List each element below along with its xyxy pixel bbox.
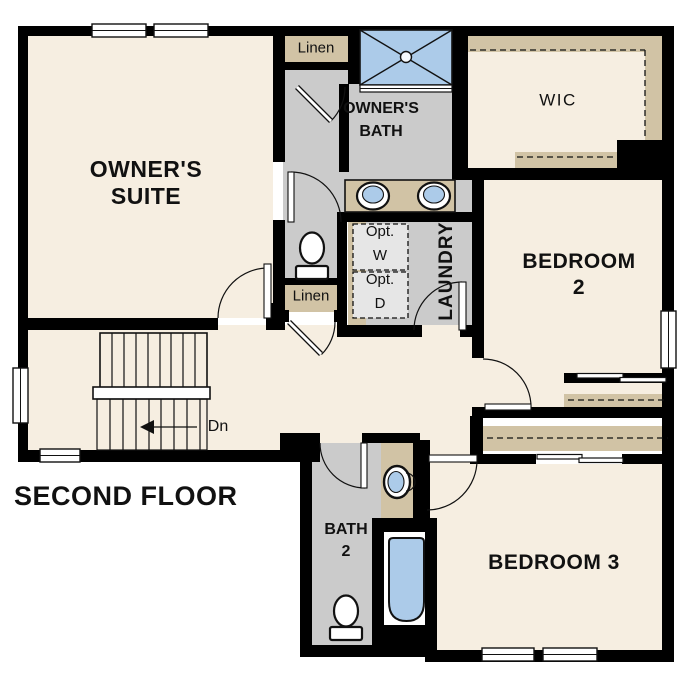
window: [482, 648, 534, 661]
wic-label: WIC: [539, 89, 577, 110]
shower-icon: [360, 30, 452, 92]
bedroom2-label: BEDROOM 2: [522, 249, 635, 302]
door-leaf[interactable]: [288, 172, 294, 222]
door-leaf[interactable]: [289, 322, 321, 354]
door-leaf[interactable]: [485, 404, 531, 410]
door-leaf[interactable]: [429, 455, 477, 462]
sink-icon: [384, 466, 415, 498]
toilet-icon: [330, 596, 362, 641]
stairs[interactable]: [93, 333, 210, 450]
stairs-down-label: Dn: [208, 417, 228, 437]
owners-suite-label: OWNER'S SUITE: [90, 156, 202, 210]
window: [13, 368, 28, 423]
door-leaf[interactable]: [264, 264, 271, 318]
optional-washer-label: Opt. W: [366, 220, 394, 268]
bath2-label: BATH 2: [324, 519, 367, 563]
window: [661, 311, 676, 368]
optional-dryer-label: Opt. D: [366, 268, 394, 316]
window: [543, 648, 597, 661]
door-leaf[interactable]: [361, 443, 367, 488]
toilet-icon: [296, 233, 328, 280]
door-leaf[interactable]: [459, 282, 466, 330]
window: [154, 24, 208, 37]
laundry-label: LAUNDRY: [435, 213, 459, 329]
floor-plan: OWNER'S SUITE OWNER'S BATH WIC Linen Lin…: [0, 0, 687, 687]
floor-title: SECOND FLOOR: [14, 481, 238, 512]
linen-hall-label: Linen: [293, 288, 330, 307]
owners-bath-label: OWNER'S BATH: [343, 97, 419, 143]
bathtub-icon: [389, 538, 424, 621]
window: [40, 449, 80, 462]
window: [92, 24, 146, 37]
vanity-sink-icon: [345, 180, 455, 212]
bedroom3-label: BEDROOM 3: [488, 550, 620, 576]
linen-upper-label: Linen: [298, 40, 335, 59]
door-leaf[interactable]: [297, 87, 331, 121]
stairs-down-arrow-icon: [140, 420, 154, 434]
sliding-closet-doors[interactable]: [537, 374, 666, 463]
